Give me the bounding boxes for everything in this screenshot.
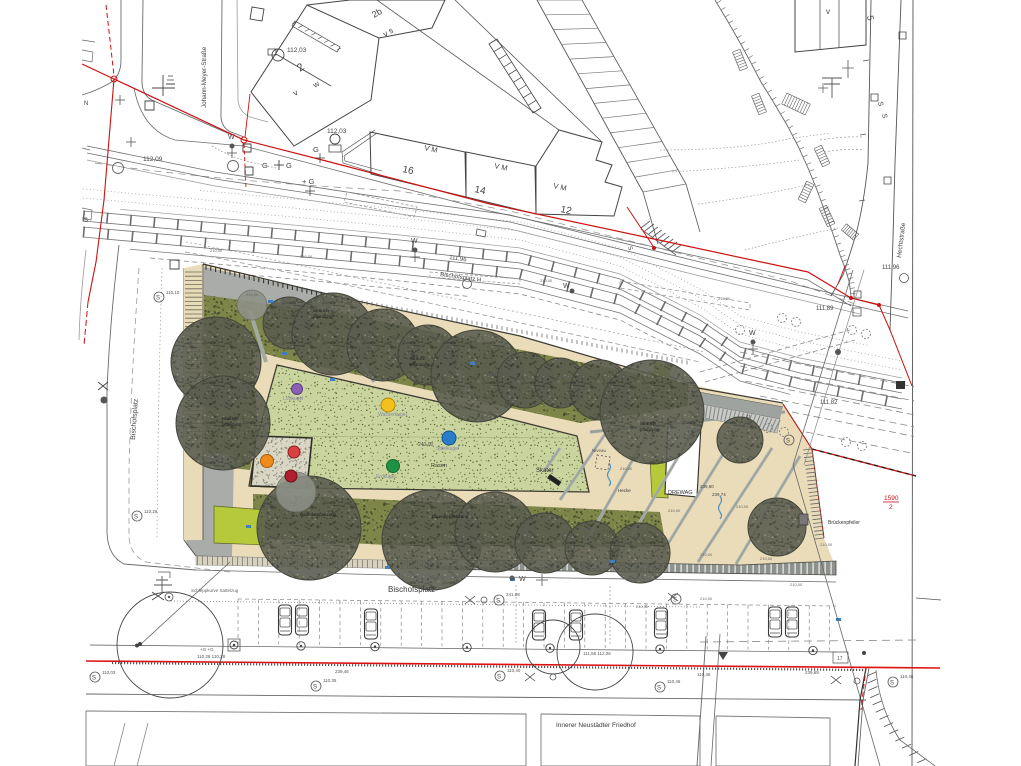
svg-text:112,09: 112,09: [143, 156, 163, 163]
svg-text:Hecke: Hecke: [618, 488, 631, 493]
svg-text:W: W: [228, 134, 235, 141]
svg-text:+ G: + G: [302, 177, 314, 186]
svg-text:N: N: [84, 101, 88, 107]
svg-text:v: v: [826, 7, 830, 16]
svg-text:239,69: 239,69: [805, 670, 819, 675]
svg-text:Spielkugel: Spielkugel: [436, 446, 459, 452]
svg-text:Strauch-: Strauch-: [222, 416, 240, 421]
svg-text:S: S: [657, 686, 661, 692]
svg-text:+G +G: +G +G: [200, 647, 214, 652]
svg-text:S: S: [134, 515, 138, 521]
svg-text:S: S: [92, 676, 96, 682]
svg-text:S: S: [497, 675, 501, 681]
svg-text:210,00: 210,00: [210, 248, 223, 253]
svg-text:210,00: 210,00: [489, 372, 503, 377]
svg-text:pflanzung: pflanzung: [313, 314, 333, 319]
svg-text:239,46: 239,46: [335, 669, 349, 674]
svg-text:111,89: 111,89: [816, 306, 834, 312]
svg-text:S: S: [890, 681, 894, 687]
svg-text:210,00: 210,00: [620, 466, 633, 471]
svg-text:Johann-Meyer-Straße: Johann-Meyer-Straße: [201, 46, 208, 108]
svg-text:110,28: 110,28: [144, 509, 158, 514]
svg-text:210,00: 210,00: [760, 556, 773, 561]
svg-text:Luftkugel: Luftkugel: [283, 396, 303, 402]
svg-text:S: S: [786, 439, 790, 445]
svg-text:S: S: [496, 599, 500, 605]
svg-text:111,82: 111,82: [820, 400, 838, 406]
svg-text:239,74: 239,74: [712, 492, 726, 497]
svg-text:Baumbepflanzung: Baumbepflanzung: [432, 514, 469, 519]
svg-text:2: 2: [889, 504, 893, 511]
svg-text:Baumbepflanzung: Baumbepflanzung: [300, 512, 337, 517]
svg-text:W: W: [749, 330, 756, 337]
svg-text:210,00: 210,00: [700, 596, 713, 601]
svg-text:Niveau: Niveau: [592, 448, 607, 453]
svg-text:S: S: [313, 685, 317, 691]
svg-text:210,00: 210,00: [246, 292, 259, 297]
svg-text:W: W: [411, 238, 418, 245]
svg-text:210,00: 210,00: [718, 296, 731, 301]
svg-text:111,56 112,06: 111,56 112,06: [583, 651, 611, 656]
svg-text:210,00: 210,00: [360, 326, 373, 331]
svg-text:Bischofsplatz: Bischofsplatz: [388, 585, 435, 594]
svg-text:Erdkugel: Erdkugel: [376, 474, 396, 480]
svg-text:Innerer Neustädter Friedhof: Innerer Neustädter Friedhof: [556, 722, 636, 729]
svg-text:210,00: 210,00: [636, 604, 649, 609]
svg-text:Strauch: Strauch: [410, 356, 426, 361]
svg-text:240,00: 240,00: [418, 442, 434, 448]
svg-text:Strauch-: Strauch-: [313, 308, 331, 313]
svg-text:DREWAG: DREWAG: [668, 490, 693, 496]
svg-text:210,00: 210,00: [300, 254, 313, 259]
svg-text:W: W: [563, 283, 570, 290]
svg-text:17: 17: [837, 656, 843, 662]
svg-text:110,46: 110,46: [667, 679, 681, 684]
svg-text:112,03: 112,03: [287, 47, 307, 54]
svg-text:210,00: 210,00: [648, 394, 661, 399]
svg-text:G: G: [313, 145, 319, 154]
svg-text:210,00: 210,00: [790, 582, 803, 587]
svg-text:210,00: 210,00: [668, 508, 681, 513]
svg-text:1590: 1590: [884, 495, 899, 502]
svg-text:G: G: [262, 161, 268, 170]
svg-text:Skater: Skater: [536, 468, 553, 474]
svg-text:210,00: 210,00: [540, 278, 553, 283]
svg-text:Strauch: Strauch: [640, 421, 656, 426]
svg-text:110,03: 110,03: [102, 670, 116, 675]
svg-text:110,40: 110,40: [507, 668, 521, 673]
svg-text:Brückenpfeiler: Brückenpfeiler: [828, 520, 860, 526]
svg-text:110,46: 110,46: [697, 672, 711, 677]
svg-text:Wasserkugel: Wasserkugel: [378, 412, 407, 418]
svg-text:210,00: 210,00: [460, 348, 473, 353]
svg-text:210,00: 210,00: [580, 526, 593, 531]
svg-text:Rasen: Rasen: [431, 463, 447, 469]
svg-text:S: S: [156, 296, 160, 302]
svg-text:111,96: 111,96: [882, 265, 900, 271]
svg-text:pflanzung: pflanzung: [222, 422, 242, 427]
svg-text:110,46: 110,46: [900, 674, 914, 679]
svg-text:210,00: 210,00: [556, 374, 569, 379]
svg-text:210,00: 210,00: [820, 542, 833, 547]
svg-text:210,00: 210,00: [736, 504, 749, 509]
svg-text:pflanzung: pflanzung: [410, 362, 430, 367]
svg-text:G: G: [286, 161, 292, 170]
svg-text:pflanzung: pflanzung: [640, 427, 660, 432]
svg-text:110,35: 110,35: [323, 678, 337, 683]
svg-text:241,08: 241,08: [506, 592, 520, 597]
svg-text:239,60: 239,60: [700, 484, 714, 489]
svg-text:Schleppkurve Sattelzug: Schleppkurve Sattelzug: [191, 588, 239, 593]
svg-text:112,03: 112,03: [327, 128, 347, 135]
svg-text:110,10: 110,10: [166, 290, 180, 295]
svg-text:210,00: 210,00: [700, 552, 713, 557]
